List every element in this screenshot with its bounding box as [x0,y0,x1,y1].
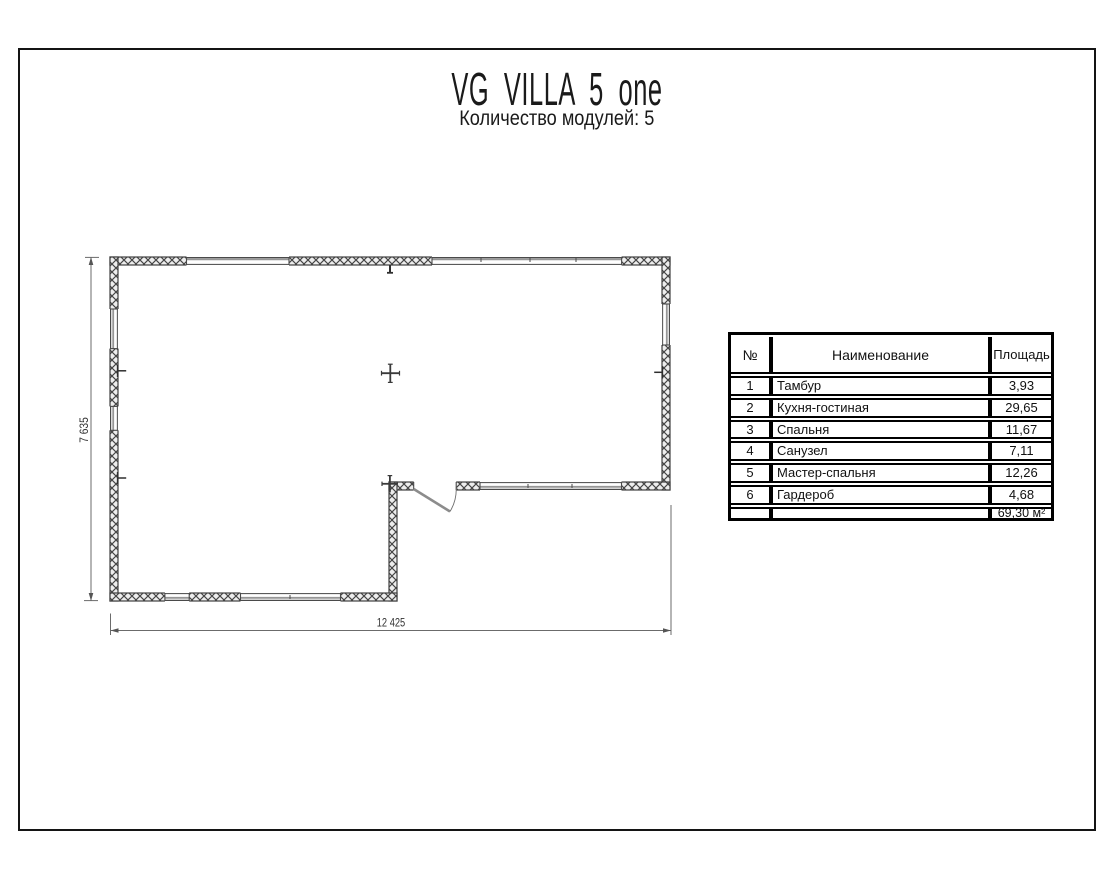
svg-text:12 425: 12 425 [377,618,406,630]
svg-text:7 635: 7 635 [79,417,91,443]
